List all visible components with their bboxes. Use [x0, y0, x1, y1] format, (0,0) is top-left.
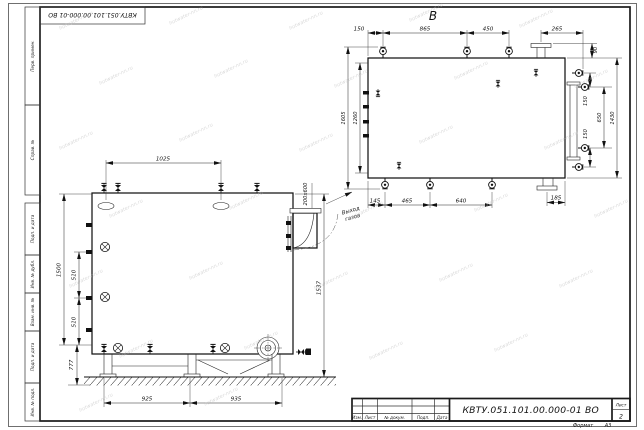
tb-sheet-number: 2	[619, 414, 623, 421]
margin-label-perv: Перв. примен.	[30, 40, 35, 71]
dim-top-4: 265	[552, 27, 563, 33]
technical-drawing: Перв. примен. Справ. № Подп. и дата Инв.…	[0, 0, 644, 430]
tb-col-dokum: № докум.	[383, 415, 405, 420]
tb-col-list: Лист	[364, 415, 376, 420]
dim-front-left-total: 1500	[57, 262, 63, 277]
paper-background	[0, 0, 644, 430]
dim-bottom-3: 640	[456, 199, 467, 205]
tb-col-data: Дата	[436, 415, 448, 420]
dim-right-small: 90	[593, 46, 599, 53]
dim-right-mid: 650	[597, 112, 603, 123]
dim-left-outer: 1605	[341, 111, 347, 125]
dim-right-seg2: 150	[583, 128, 589, 139]
dim-top-2: 865	[420, 27, 431, 33]
margin-label-sprav: Справ. №	[30, 139, 35, 160]
ground-line	[84, 377, 336, 386]
margin-label-vzam: Взам. инв. №	[30, 297, 35, 326]
drawing-sheet: Перв. примен. Справ. № Подп. и дата Инв.…	[0, 0, 644, 430]
dim-front-top: 1025	[156, 157, 171, 163]
dim-right-seg1: 150	[583, 95, 589, 106]
dim-top-1: 150	[354, 27, 365, 33]
dim-top-3: 450	[483, 27, 494, 33]
dim-front-left-seg1: 510	[72, 269, 78, 280]
dim-right-total: 1430	[610, 111, 616, 125]
dim-front-bottom-right: 935	[231, 397, 242, 403]
dim-front-bottom-left: 925	[142, 397, 153, 403]
dim-bottom-4: 185	[551, 196, 562, 202]
dim-front-left-seg2: 510	[72, 316, 78, 327]
dim-front-left-bottom: 777	[69, 359, 75, 370]
margin-label-podp2: Подп. и дата	[30, 342, 35, 371]
duct-size-label: 200x600	[303, 182, 309, 206]
dim-bottom-2: 465	[402, 199, 413, 205]
tb-col-podp: Подп.	[417, 415, 430, 420]
margin-label-podp1: Подп. и дата	[30, 214, 35, 243]
margin-label-podl: Инв. № подл.	[30, 388, 35, 417]
tb-sheet-label: Лист	[615, 403, 627, 408]
format-label: Формат	[573, 423, 594, 429]
margin-label-dubl: Инв. № дубл.	[30, 260, 35, 289]
dim-left-inner: 1260	[353, 111, 359, 125]
format-value: А3	[604, 423, 612, 429]
tb-col-izm: Изм.	[352, 415, 362, 420]
tb-designation: КВТУ.051.101.00.000-01 ВО	[462, 405, 598, 416]
